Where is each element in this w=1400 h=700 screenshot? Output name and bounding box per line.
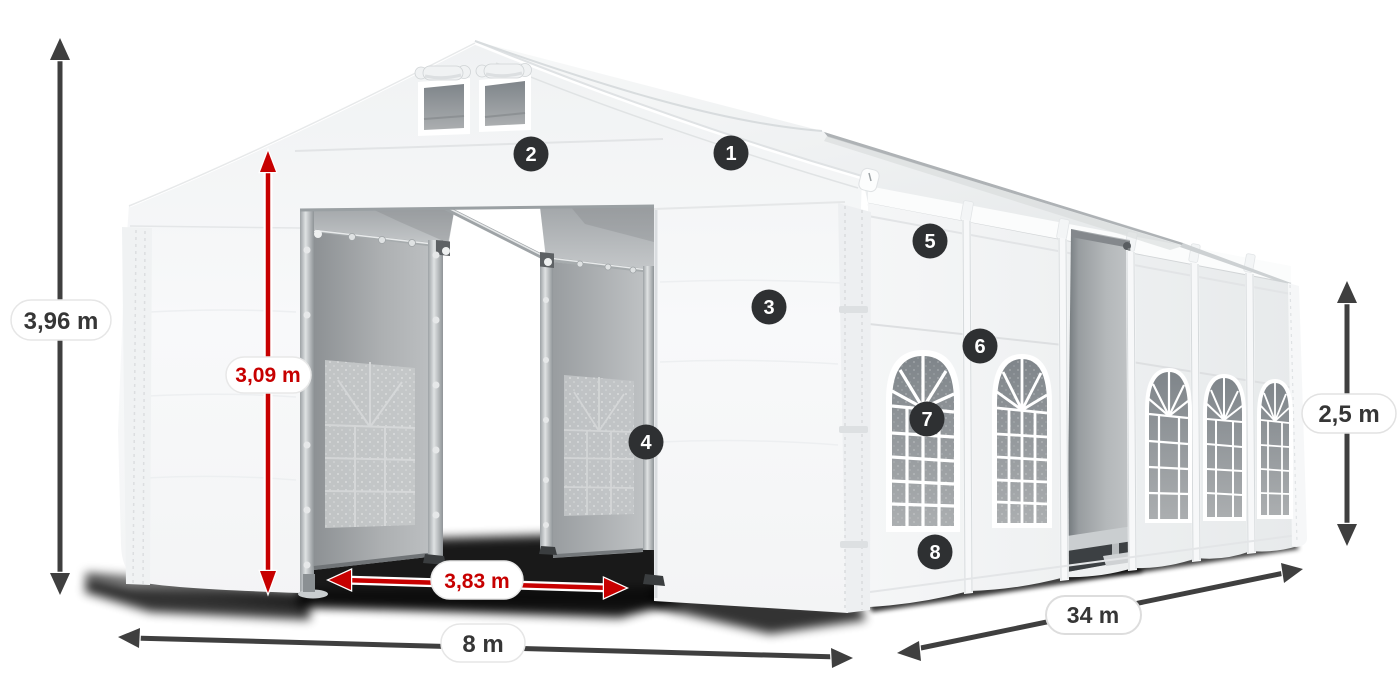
svg-text:2: 2: [525, 144, 536, 166]
svg-text:1: 1: [725, 143, 736, 165]
svg-text:2,5 m: 2,5 m: [1318, 401, 1379, 428]
svg-text:3,09 m: 3,09 m: [235, 364, 300, 387]
svg-text:5: 5: [924, 231, 935, 253]
svg-text:4: 4: [640, 432, 652, 454]
svg-text:8: 8: [929, 542, 940, 564]
svg-text:3: 3: [763, 297, 774, 319]
svg-text:8 m: 8 m: [462, 631, 503, 658]
svg-text:6: 6: [974, 336, 985, 358]
svg-text:3,96 m: 3,96 m: [24, 308, 99, 335]
svg-text:7: 7: [921, 409, 932, 431]
svg-text:34 m: 34 m: [1067, 602, 1119, 628]
svg-text:3,83 m: 3,83 m: [444, 570, 509, 593]
